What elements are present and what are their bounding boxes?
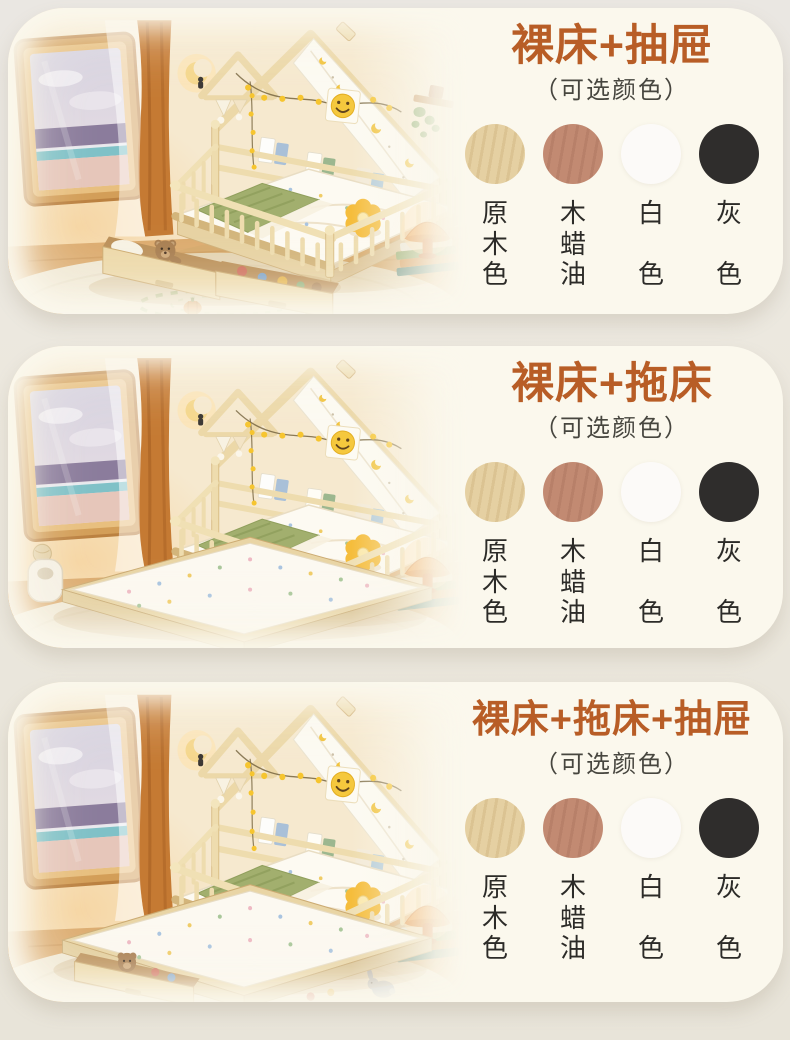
color-swatch-gray	[699, 462, 759, 522]
color-swatch-natural	[465, 124, 525, 184]
color-name: 白 色	[638, 200, 664, 288]
color-name: 原 木 色	[482, 874, 508, 962]
panel-3-content: 裸床+拖床+抽屉 （可选颜色） 原 木 色 木 蜡 油	[444, 696, 780, 962]
color-name: 灰 色	[716, 874, 742, 962]
color-swatch-gray	[699, 124, 759, 184]
color-name: 木 蜡 油	[560, 538, 586, 626]
color-swatch-row: 原 木 色 木 蜡 油 白	[444, 124, 780, 288]
panel-bed-with-drawers: 裸床+抽屉 （可选颜色） 原 木 色 木 蜡 油	[8, 8, 783, 314]
color-swatch-gray	[699, 798, 759, 858]
color-swatch-white	[621, 462, 681, 522]
color-option-natural: 原 木 色	[463, 124, 527, 288]
panel-bed-with-trundle: 裸床+拖床 （可选颜色） 原 木 色 木 蜡 油	[8, 346, 783, 648]
color-option-white: 白 色	[619, 124, 683, 288]
color-option-white: 白 色	[619, 462, 683, 626]
color-option-wax-oil: 木 蜡 油	[541, 798, 605, 962]
page-title: 裸床+拖床	[444, 360, 780, 408]
subtitle-color-options: （可选颜色）	[444, 750, 780, 780]
color-option-gray: 灰 色	[697, 462, 761, 626]
color-swatch-white	[621, 124, 681, 184]
color-name: 白 色	[638, 538, 664, 626]
color-option-wax-oil: 木 蜡 油	[541, 462, 605, 626]
product-photo-bed-trundle-drawers	[8, 682, 472, 1002]
color-option-gray: 灰 色	[697, 798, 761, 962]
page-title: 裸床+拖床+抽屉	[444, 696, 780, 744]
color-name: 原 木 色	[482, 200, 508, 288]
color-name: 白 色	[638, 874, 664, 962]
subtitle-color-options: （可选颜色）	[444, 414, 780, 444]
page-title: 裸床+抽屉	[444, 22, 780, 70]
color-swatch-row: 原 木 色 木 蜡 油 白	[444, 462, 780, 626]
color-swatch-natural	[465, 462, 525, 522]
color-name: 原 木 色	[482, 538, 508, 626]
subtitle-color-options: （可选颜色）	[444, 76, 780, 106]
color-option-white: 白 色	[619, 798, 683, 962]
color-name: 灰 色	[716, 538, 742, 626]
panel-bed-trundle-drawers: 裸床+拖床+抽屉 （可选颜色） 原 木 色 木 蜡 油	[8, 682, 783, 1002]
color-option-natural: 原 木 色	[463, 798, 527, 962]
color-option-gray: 灰 色	[697, 124, 761, 288]
color-name: 木 蜡 油	[560, 874, 586, 962]
product-detail-page: 裸床+抽屉 （可选颜色） 原 木 色 木 蜡 油	[0, 0, 790, 1040]
color-name: 木 蜡 油	[560, 200, 586, 288]
color-swatch-natural	[465, 798, 525, 858]
product-photo-bed-trundle	[8, 346, 472, 648]
panel-1-content: 裸床+抽屉 （可选颜色） 原 木 色 木 蜡 油	[444, 22, 780, 288]
panel-2-content: 裸床+拖床 （可选颜色） 原 木 色 木 蜡 油	[444, 360, 780, 626]
product-photo-bed-drawers	[8, 8, 472, 314]
color-name: 灰 色	[716, 200, 742, 288]
color-option-wax-oil: 木 蜡 油	[541, 124, 605, 288]
color-option-natural: 原 木 色	[463, 462, 527, 626]
color-swatch-wax-oil	[543, 462, 603, 522]
color-swatch-wax-oil	[543, 798, 603, 858]
color-swatch-row: 原 木 色 木 蜡 油 白	[444, 798, 780, 962]
color-swatch-wax-oil	[543, 124, 603, 184]
color-swatch-white	[621, 798, 681, 858]
